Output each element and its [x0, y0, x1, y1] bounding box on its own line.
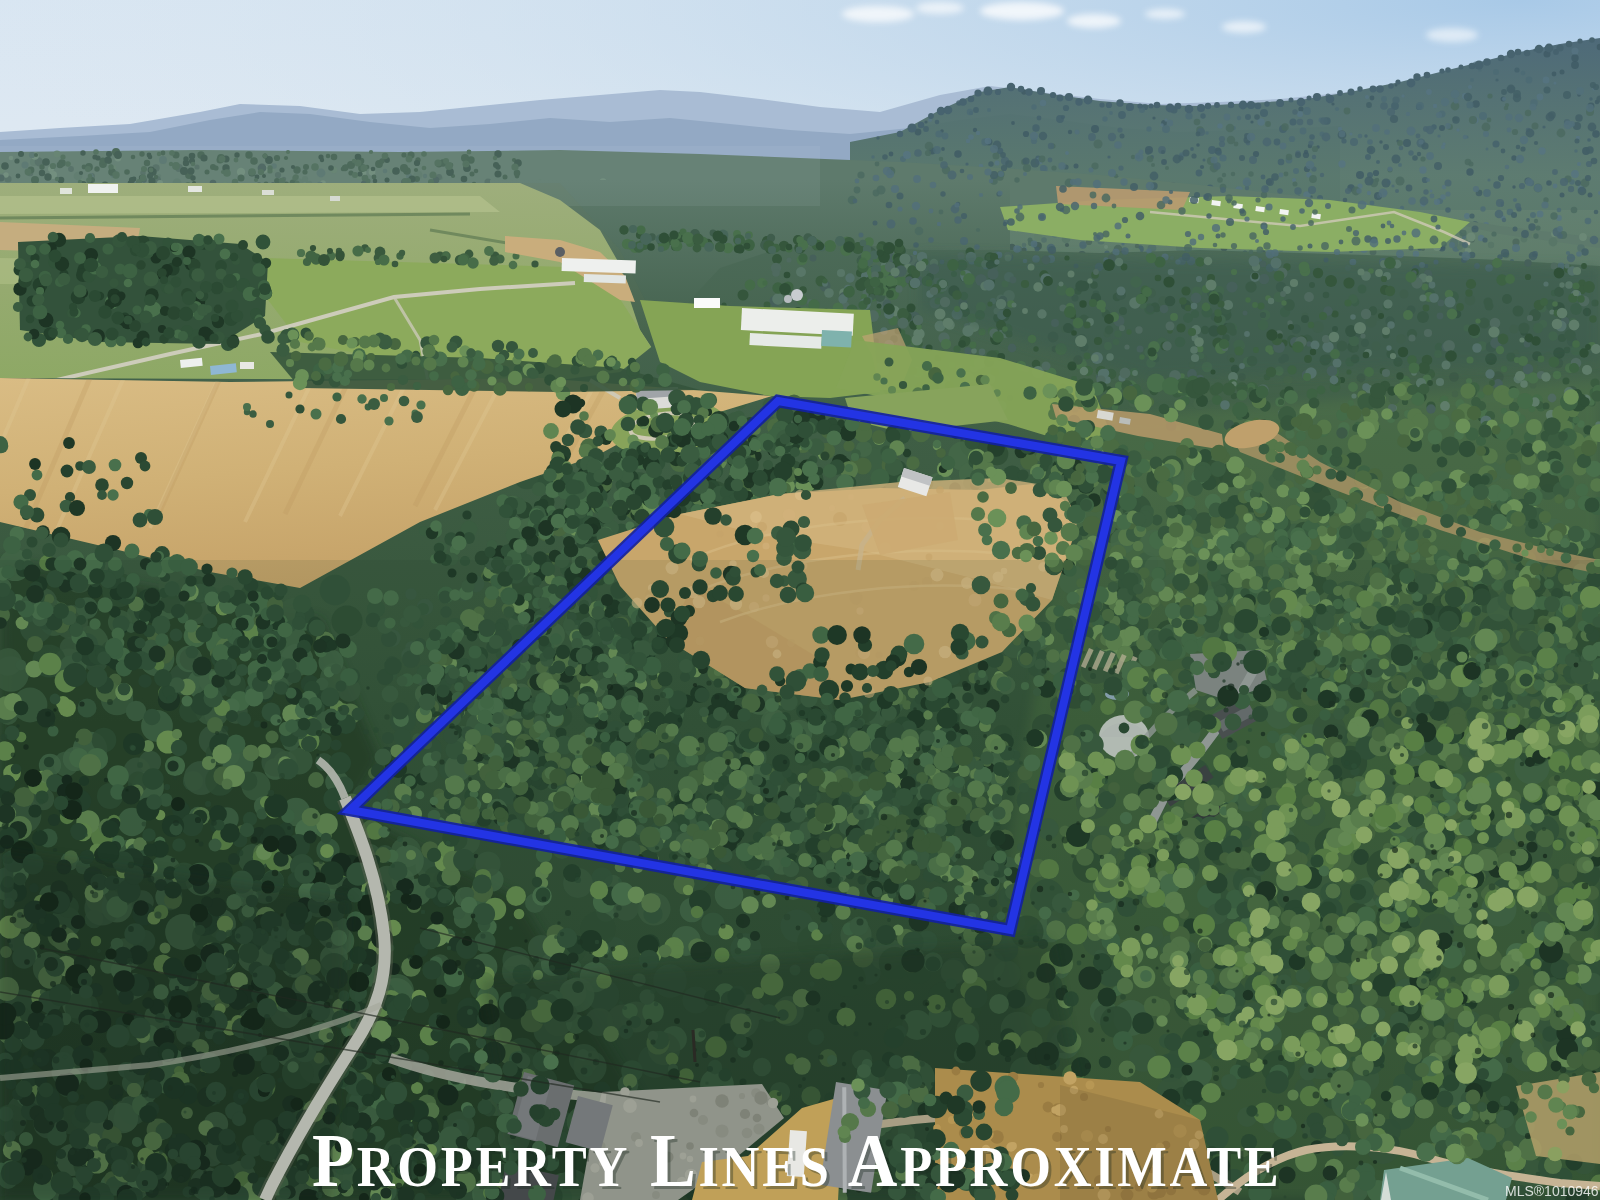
svg-text:MLS®1010946: MLS®1010946 — [1505, 1183, 1599, 1199]
